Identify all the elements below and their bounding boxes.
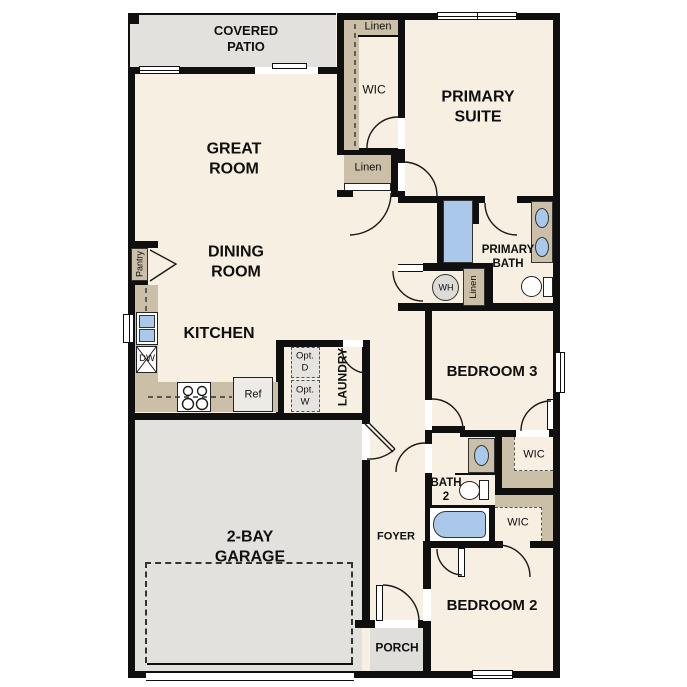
dishwasher-label: DW [139,353,155,365]
wall [337,190,353,197]
kitchen-label: KITCHEN [183,324,254,344]
linen-mid-shelf [344,183,391,191]
shower [443,200,473,263]
primary-bath-label: PRIMARY BATH [482,243,535,271]
bedroom2-window [472,670,513,679]
refrigerator-label: Ref [244,388,261,401]
wall [276,340,342,347]
wall [362,340,370,413]
wall [398,13,405,117]
linen-top-label: Linen [365,20,392,33]
covered-patio-label: COVERED PATIO [214,23,278,55]
wic-bedroom3-label: WIC [523,448,544,461]
door-opening [398,264,423,272]
wall [553,13,560,678]
primary-suite-label: PRIMARY SUITE [441,87,514,126]
primary-vanity-sink [535,208,549,228]
optional-washer-label: Opt. W [296,384,314,407]
door-leaf [547,399,554,430]
wall [472,196,479,224]
garage-door [146,671,354,681]
kitchen-sink-bowl [139,315,155,328]
wall [423,620,431,678]
door-opening [425,443,432,474]
wic-bedroom2-label: WIC [507,516,528,529]
wall [455,473,495,475]
water-heater-label: WH [439,283,454,294]
door-opening [398,162,405,192]
bathtub-basin [433,511,486,538]
door-opening [398,117,405,150]
wall [337,13,344,155]
wall [128,413,370,420]
bedroom3-label: BEDROOM 3 [447,363,538,381]
linen-mid-label: Linen [355,161,382,174]
garage-bay-dashed [145,562,353,663]
door-opening [425,399,432,431]
front-door-leaf [376,585,383,621]
range-stove [177,382,211,412]
laundry-label: LAUNDRY [336,348,351,406]
bedroom2-label: BEDROOM 2 [447,597,538,615]
wall [423,541,503,548]
door-opening [362,423,370,461]
optional-dryer-label: Opt. D [296,350,314,373]
great-room-label: GREAT ROOM [207,139,262,178]
door-opening [516,430,549,437]
wall [128,67,135,678]
door-leaf [458,548,465,577]
bedroom3-window [555,352,565,393]
bath2-label: BATH 2 [430,476,461,504]
primary-toilet-bowl [521,276,542,297]
garage-door-panel-line [147,663,353,665]
wall [423,548,431,588]
bath2-toilet-tank [479,480,489,500]
primary-wic-shelf-strip [344,20,359,150]
bath2-toilet-bowl [459,481,480,500]
porch-label: PORCH [375,641,418,656]
dining-room-label: DINING ROOM [208,242,264,281]
primary-suite-window [437,12,517,20]
wall [460,430,516,437]
great-room-window [139,66,180,74]
primary-vanity-sink [535,237,549,257]
linen-hall-label: Linen [468,275,480,298]
patio-sliding-door [272,63,307,69]
cased-opening [423,588,431,622]
primary-toilet-tank [543,277,553,297]
front-door-opening [375,620,418,628]
kitchen-window [123,314,134,343]
wall [549,430,556,437]
wall [128,241,158,248]
wall [391,155,398,197]
wall [425,311,432,399]
wall [530,541,560,548]
wall [495,430,502,495]
patio-post [128,13,139,24]
garage-label: 2-BAY GARAGE [215,527,285,566]
kitchen-sink-bowl [139,329,155,342]
wic-primary-label: WIC [362,83,385,98]
wall [495,488,560,495]
floor-plan: COVERED PATIO GREAT ROOM DINING ROOM KIT… [0,0,687,687]
bath2-sink [474,445,489,466]
foyer-label: FOYER [377,530,415,543]
pantry-label: Pantry [135,251,146,277]
door-opening [342,340,364,347]
